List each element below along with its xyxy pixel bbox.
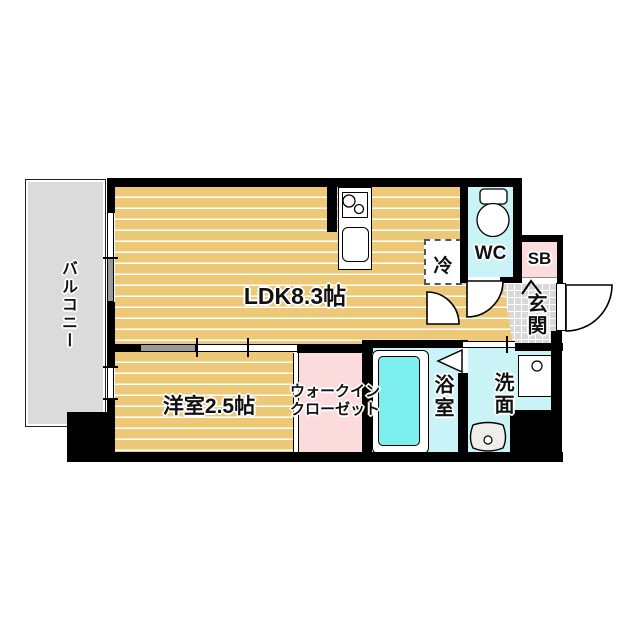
label-balcony: バルコニー	[55, 260, 79, 350]
slider-tick-1	[196, 338, 198, 357]
label-wic-line1: ウォークイン	[290, 383, 380, 400]
floor-plan: LDK8.3帖 洋室2.5帖 ウォークイン クローゼット 浴室 洗面 玄関 WC…	[0, 0, 640, 640]
window-tick-1	[103, 257, 118, 259]
entrance-door-leaf	[556, 283, 566, 331]
shoe-box-front	[522, 277, 557, 284]
label-ldk: LDK8.3帖	[200, 277, 390, 311]
wall-wc-bottom	[500, 277, 522, 283]
window-ldk-balcony	[107, 213, 114, 258]
label-genkan: 玄関	[521, 293, 550, 337]
label-wc: WC	[468, 243, 513, 265]
wall-sb-right	[557, 235, 563, 283]
wall-left-b	[107, 302, 115, 367]
sliding-door-ldk-western-pane2	[196, 344, 247, 352]
window-tick-3	[103, 398, 118, 400]
kitchen-sink-icon	[342, 227, 369, 262]
wall-sb-top	[515, 235, 563, 242]
wall-bath-washroom	[458, 373, 468, 452]
label-wic-line2: クローゼット	[290, 401, 380, 418]
slider-tick-3	[506, 336, 508, 353]
wall-left-a	[107, 187, 115, 213]
window-tick-2	[103, 366, 118, 368]
label-shoe-box: SB	[522, 249, 557, 269]
wall-ldk-west-divider	[107, 344, 140, 352]
wall-genkan-bottom	[515, 343, 563, 351]
door-arc-entrance	[566, 285, 612, 331]
wall-kitchen-stub	[327, 183, 337, 232]
slider-tick-2	[247, 338, 249, 357]
label-washroom: 洗面	[488, 372, 517, 416]
label-western-room: 洋室2.5帖	[119, 390, 299, 420]
wall-bottom	[67, 452, 563, 462]
label-bathroom: 浴室	[428, 374, 457, 420]
wall-top	[107, 178, 522, 187]
washer-pan-icon	[518, 355, 553, 397]
room-ldk	[115, 187, 460, 344]
wall-ldk-bath	[362, 340, 468, 348]
sliding-door-ldk-western-pane3	[247, 344, 297, 352]
window-ldk-balcony-pane	[107, 258, 114, 302]
label-refrigerator: 冷	[424, 251, 462, 278]
window-western-balcony	[107, 367, 114, 400]
wall-corner-se	[510, 410, 562, 462]
bathtub-inner	[378, 356, 420, 446]
label-walk-in-closet: ウォークイン クローゼット	[290, 383, 380, 419]
sliding-door-ldk-western-pane1	[140, 344, 196, 352]
stove-icon	[342, 192, 368, 218]
